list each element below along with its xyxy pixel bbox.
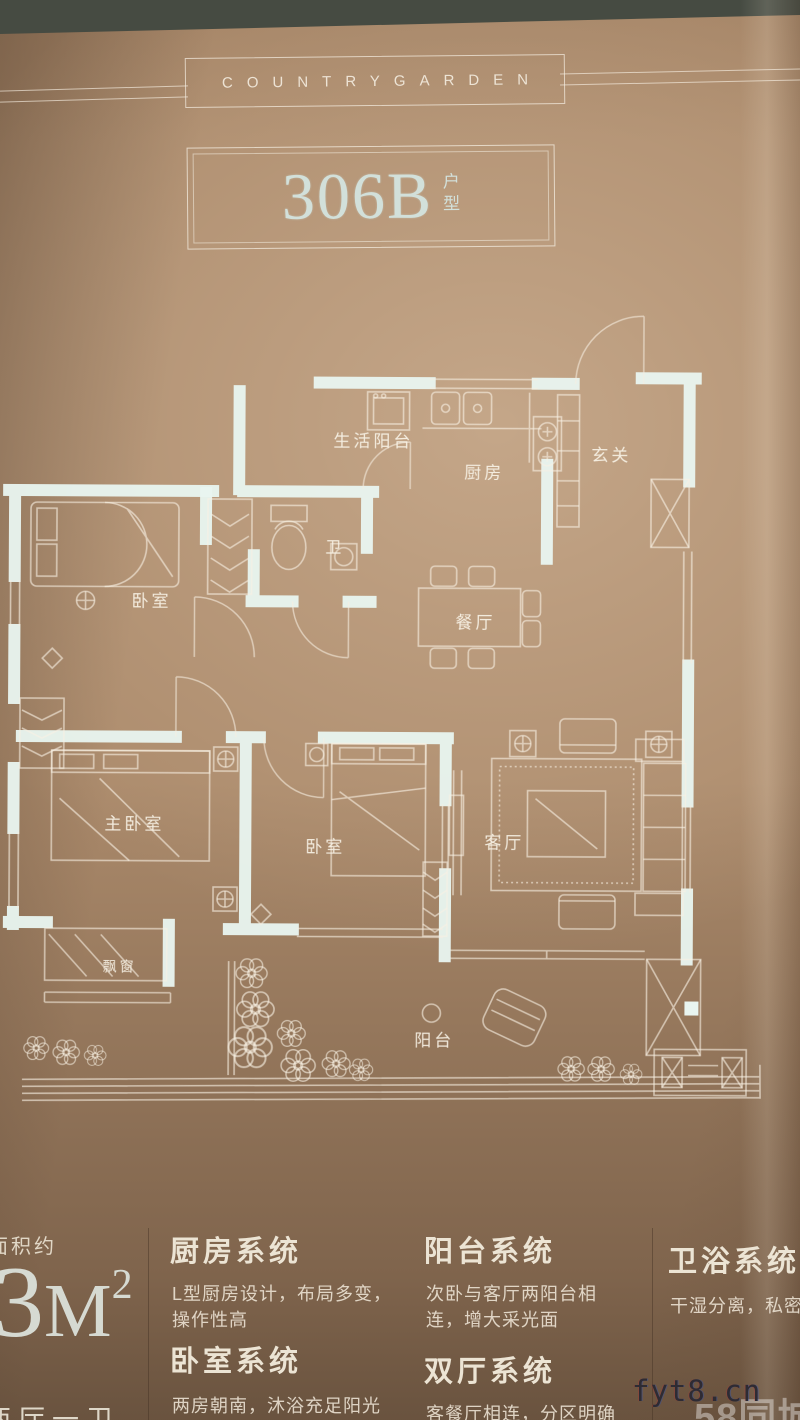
washing-machine-icon [367, 392, 409, 430]
room-label-dining: 餐厅 [455, 613, 495, 632]
room-label-service-balcony: 生活阳台 [333, 432, 413, 451]
layout-summary: 两厅一卫 [0, 1398, 120, 1420]
furniture [18, 390, 764, 1105]
entry-cabinet-icon [557, 395, 580, 527]
room-label-entry: 玄关 [591, 446, 631, 465]
system-desc: 次卧与客厅两阳台相 [426, 1280, 597, 1306]
balcony-duct [646, 959, 701, 1055]
area-digit: 3 [0, 1252, 44, 1354]
system-desc: 两房朝南，沐浴充足阳光 [172, 1392, 381, 1418]
system-desc: 干湿分离，私密性强 [670, 1292, 800, 1318]
column-divider [148, 1228, 149, 1420]
corridor-diamond [41, 648, 272, 924]
room-label-bath: 卫 [325, 540, 344, 557]
toilet-icon [271, 505, 307, 569]
sofa-icon [635, 739, 686, 915]
system-title-kitchen: 厨房系统 [170, 1228, 302, 1270]
site-watermark: fyt8.cn [632, 1374, 761, 1408]
system-title-double-hall: 双厅系统 [424, 1348, 556, 1390]
room-label-master-bedroom: 主卧室 [104, 814, 164, 833]
room-label-living: 客厅 [484, 833, 524, 852]
area-unit-sup: 2 [112, 1264, 133, 1306]
room-label-bay-window: 飘窗 [103, 958, 137, 974]
system-desc: 连，增大采光面 [426, 1306, 559, 1332]
system-desc: L型厨房设计，布局多变， [172, 1280, 392, 1306]
floorplan-poster: COUNTRYGARDEN 306B 户 型 [0, 0, 800, 1420]
room-label-kitchen: 厨房 [464, 463, 504, 482]
system-desc: 客餐厅相连，分区明确 [426, 1400, 616, 1420]
system-title-bathroom: 卫浴系统 [668, 1238, 800, 1280]
kitchen-sink-icon [422, 392, 541, 463]
plant-icons [24, 958, 643, 1085]
walls [7, 375, 696, 984]
floor-plan-drawing: 生活阳台 厨房 玄关 卫 卧室 餐厅 主卧室 卧室 客厅 飘窗 阳台 [0, 0, 800, 1420]
system-title-bedroom: 卧室系统 [170, 1338, 302, 1380]
room-label-balcony: 阳台 [414, 1031, 454, 1050]
area-value: 83M2 [0, 1252, 133, 1354]
system-title-balcony: 阳台系统 [424, 1228, 556, 1270]
room-label-bedroom2: 卧室 [305, 838, 345, 857]
room-label-bedroom: 卧室 [132, 592, 172, 611]
wardrobe-icon [208, 499, 252, 594]
system-desc: 操作性高 [172, 1306, 248, 1332]
coffee-table-icon [527, 791, 605, 857]
entry-duct [651, 479, 689, 547]
area-unit: M [44, 1273, 112, 1349]
balcony-railing [22, 1065, 760, 1102]
